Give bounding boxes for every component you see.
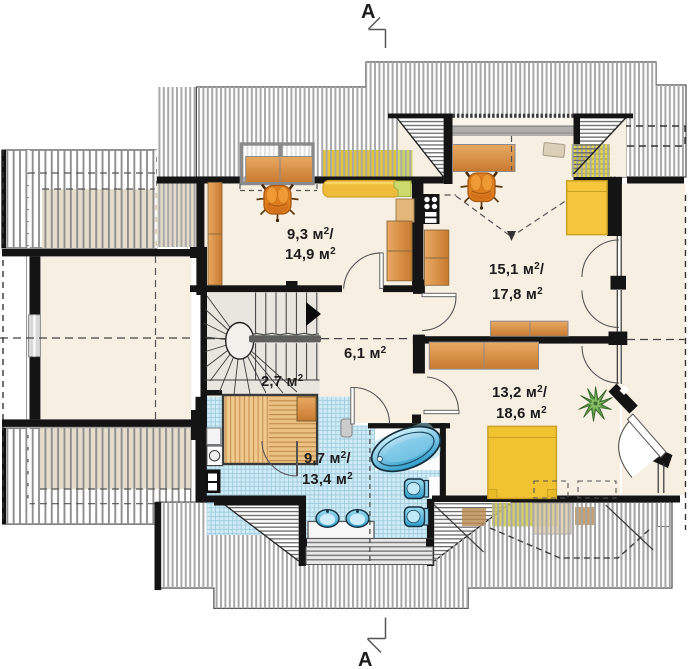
svg-text:17,8 м2: 17,8 м2 (492, 286, 543, 303)
svg-text:A: A (358, 649, 372, 669)
svg-text:A: A (361, 1, 375, 23)
svg-text:18,6 м2: 18,6 м2 (496, 405, 547, 422)
svg-text:6,1 м2: 6,1 м2 (344, 345, 387, 362)
svg-text:2,7 м2: 2,7 м2 (261, 373, 304, 390)
svg-text:14,9 м2: 14,9 м2 (285, 246, 336, 263)
svg-text:13,4 м2: 13,4 м2 (302, 471, 353, 488)
